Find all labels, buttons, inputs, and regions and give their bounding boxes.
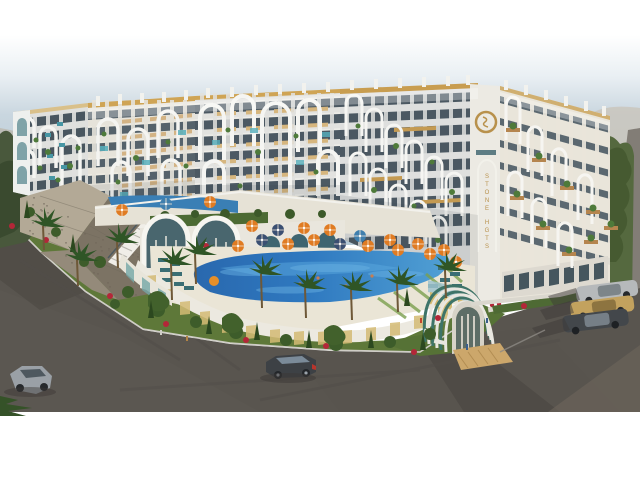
svg-text:T: T: [485, 182, 489, 188]
svg-text:E: E: [485, 206, 489, 212]
svg-text:N: N: [485, 198, 489, 204]
svg-text:S: S: [485, 174, 489, 180]
svg-text:G: G: [485, 228, 490, 234]
svg-text:O: O: [485, 190, 490, 196]
svg-text:T: T: [485, 236, 489, 242]
svg-text:H: H: [485, 220, 489, 226]
svg-text:S: S: [485, 244, 489, 250]
